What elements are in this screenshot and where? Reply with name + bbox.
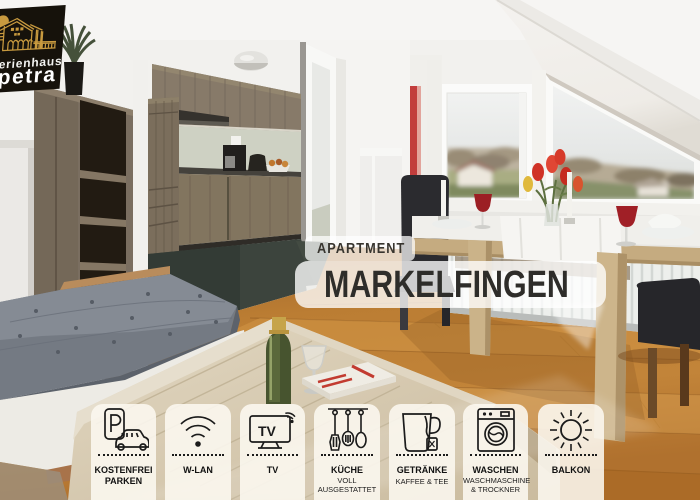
svg-text:TV: TV <box>258 423 277 439</box>
